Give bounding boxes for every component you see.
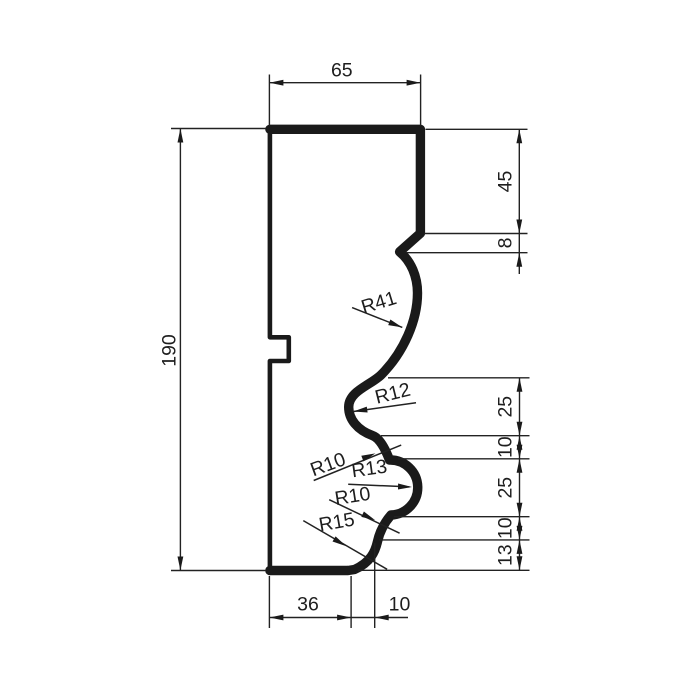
svg-text:8: 8 (495, 238, 517, 249)
svg-text:36: 36 (297, 593, 319, 615)
svg-text:190: 190 (158, 334, 180, 367)
svg-text:10: 10 (494, 517, 516, 539)
svg-text:13: 13 (494, 544, 516, 566)
svg-text:25: 25 (494, 396, 516, 418)
svg-text:10: 10 (389, 593, 411, 615)
svg-text:10: 10 (494, 436, 516, 458)
svg-text:65: 65 (331, 60, 353, 82)
svg-text:45: 45 (495, 171, 517, 193)
svg-text:25: 25 (494, 477, 516, 499)
